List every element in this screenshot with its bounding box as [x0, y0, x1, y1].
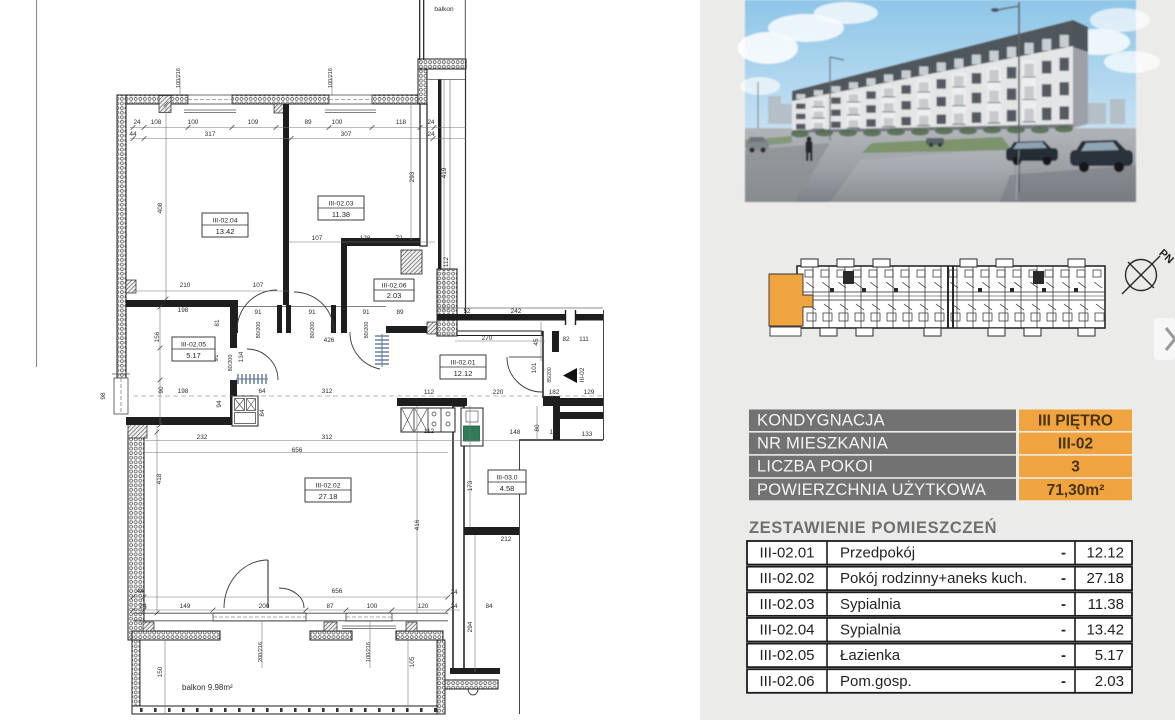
svg-text:POWIERZCHNIA UŻYTKOWA: POWIERZCHNIA UŻYTKOWA [757, 480, 986, 499]
svg-text:-: - [1061, 673, 1066, 690]
svg-text:4.58: 4.58 [500, 484, 515, 493]
svg-text:Sypialnia: Sypialnia [840, 596, 902, 613]
svg-text:307: 307 [341, 131, 352, 138]
svg-text:128: 128 [360, 235, 371, 242]
svg-text:5.17: 5.17 [1095, 647, 1124, 664]
svg-text:-: - [1061, 596, 1066, 613]
svg-text:91: 91 [308, 309, 316, 316]
svg-text:KONDYGNACJA: KONDYGNACJA [757, 412, 885, 430]
svg-text:Pokój rodzinny+aneks kuch.: Pokój rodzinny+aneks kuch. [840, 570, 1027, 587]
svg-text:III-02.04: III-02.04 [213, 218, 238, 225]
svg-text:317: 317 [205, 131, 216, 138]
svg-text:Łazienka: Łazienka [840, 647, 901, 664]
svg-text:270: 270 [482, 335, 493, 342]
svg-text:312: 312 [322, 434, 333, 441]
svg-text:105: 105 [409, 656, 416, 667]
svg-text:2.03: 2.03 [387, 291, 402, 300]
svg-text:416: 416 [414, 519, 421, 530]
svg-text:656: 656 [332, 588, 343, 595]
svg-text:90: 90 [158, 386, 165, 394]
svg-text:198: 198 [178, 388, 189, 395]
svg-text:91: 91 [254, 309, 262, 316]
svg-text:100/216: 100/216 [176, 68, 182, 88]
svg-text:150: 150 [157, 666, 164, 677]
svg-text:419: 419 [441, 167, 448, 178]
svg-text:III-02.05: III-02.05 [759, 647, 814, 664]
svg-text:Pom.gosp.: Pom.gosp. [840, 673, 912, 690]
svg-text:87: 87 [326, 603, 334, 610]
svg-text:III-02.04: III-02.04 [759, 621, 814, 638]
svg-text:80/200: 80/200 [228, 355, 234, 372]
svg-text:24: 24 [133, 119, 141, 126]
svg-text:52: 52 [463, 308, 471, 315]
svg-text:45: 45 [533, 338, 540, 346]
svg-text:84: 84 [485, 603, 493, 610]
svg-text:3: 3 [1071, 459, 1080, 476]
svg-text:242: 242 [511, 308, 522, 315]
svg-text:Sypialnia: Sypialnia [840, 621, 902, 638]
svg-text:-: - [1061, 545, 1066, 562]
svg-text:220: 220 [493, 389, 504, 396]
svg-text:24: 24 [427, 119, 435, 126]
svg-text:89: 89 [304, 119, 312, 126]
svg-text:100/216: 100/216 [328, 68, 334, 88]
svg-text:156: 156 [154, 331, 161, 342]
svg-text:84: 84 [259, 409, 266, 417]
svg-text:112: 112 [443, 256, 450, 267]
svg-text:72: 72 [395, 235, 403, 242]
svg-text:418: 418 [156, 473, 163, 484]
svg-text:Przedpokój: Przedpokój [840, 545, 915, 562]
svg-text:III-02.02: III-02.02 [759, 570, 814, 587]
svg-text:2.03: 2.03 [1095, 673, 1124, 690]
svg-text:24: 24 [450, 603, 458, 610]
svg-text:5.17: 5.17 [186, 351, 201, 360]
svg-text:24: 24 [427, 131, 435, 138]
svg-text:III-02.03: III-02.03 [329, 201, 354, 208]
svg-text:III-03.0: III-03.0 [496, 475, 517, 482]
svg-text:27.18: 27.18 [319, 492, 338, 501]
svg-text:107: 107 [253, 282, 264, 289]
svg-text:210: 210 [180, 282, 191, 289]
svg-text:81: 81 [214, 319, 221, 327]
svg-text:89: 89 [396, 309, 404, 316]
svg-text:-: - [1061, 621, 1066, 638]
svg-text:426: 426 [324, 337, 335, 344]
svg-text:III-02.01: III-02.01 [451, 360, 476, 367]
svg-text:112: 112 [424, 428, 435, 435]
svg-text:64: 64 [258, 388, 266, 395]
svg-text:182: 182 [549, 389, 560, 396]
svg-text:98: 98 [100, 392, 107, 400]
svg-text:134: 134 [238, 351, 245, 362]
svg-text:82: 82 [562, 336, 570, 343]
svg-text:27.18: 27.18 [1086, 570, 1124, 587]
svg-text:120: 120 [418, 603, 429, 610]
svg-text:148: 148 [510, 429, 521, 436]
svg-text:LICZBA POKOI: LICZBA POKOI [757, 458, 873, 476]
svg-text:12.12: 12.12 [454, 369, 473, 378]
svg-text:656: 656 [292, 447, 303, 454]
svg-text:91: 91 [362, 309, 370, 316]
svg-text:198: 198 [178, 307, 189, 314]
svg-text:294: 294 [467, 621, 474, 632]
svg-text:200/216: 200/216 [258, 642, 264, 662]
svg-text:III-02.06: III-02.06 [382, 283, 407, 290]
svg-text:24: 24 [450, 589, 458, 596]
svg-text:112: 112 [424, 389, 435, 396]
svg-text:balkon 9.98m²: balkon 9.98m² [182, 683, 233, 692]
svg-text:85/200: 85/200 [547, 367, 553, 383]
svg-text:13.42: 13.42 [216, 227, 235, 236]
svg-text:12.12: 12.12 [1086, 545, 1124, 562]
svg-text:11.38: 11.38 [1088, 596, 1124, 613]
svg-text:212: 212 [501, 536, 512, 543]
svg-text:100: 100 [367, 603, 378, 610]
svg-text:111: 111 [579, 336, 589, 343]
svg-text:III PIĘTRO: III PIĘTRO [1038, 413, 1113, 430]
svg-text:ZESTAWIENIE POMIESZCZEŃ: ZESTAWIENIE POMIESZCZEŃ [749, 518, 997, 537]
svg-text:III-02: III-02 [1058, 436, 1093, 453]
svg-text:232: 232 [197, 434, 208, 441]
svg-text:24: 24 [139, 603, 147, 610]
svg-text:80/200: 80/200 [310, 322, 316, 339]
svg-text:III-02: III-02 [579, 367, 586, 382]
svg-text:118: 118 [396, 119, 407, 126]
svg-text:III-02.02: III-02.02 [316, 483, 341, 490]
svg-text:III-02.06: III-02.06 [759, 673, 814, 690]
svg-text:80/200: 80/200 [364, 322, 370, 339]
svg-text:-: - [1061, 647, 1066, 664]
svg-text:11.38: 11.38 [332, 210, 350, 219]
svg-text:80: 80 [534, 424, 541, 432]
svg-text:101: 101 [531, 362, 538, 373]
svg-text:44: 44 [136, 588, 144, 595]
svg-text:80/200: 80/200 [256, 322, 262, 339]
svg-text:13.42: 13.42 [1086, 621, 1124, 638]
svg-text:107: 107 [312, 235, 323, 242]
svg-text:173: 173 [467, 480, 474, 491]
svg-text:312: 312 [322, 388, 333, 395]
svg-text:III-02.05: III-02.05 [181, 342, 206, 349]
svg-text:71,30m²: 71,30m² [1047, 482, 1105, 499]
svg-text:94: 94 [216, 400, 223, 408]
svg-text:109: 109 [248, 119, 259, 126]
svg-text:408: 408 [157, 202, 164, 213]
svg-text:NR MIESZKANIA: NR MIESZKANIA [757, 435, 888, 453]
svg-text:12: 12 [549, 429, 557, 436]
svg-text:200: 200 [259, 603, 270, 610]
svg-text:100/216: 100/216 [366, 642, 372, 662]
svg-text:129: 129 [584, 389, 595, 396]
svg-text:-: - [1061, 570, 1066, 587]
svg-text:balkon: balkon [434, 6, 454, 13]
svg-text:100: 100 [332, 119, 343, 126]
svg-text:100: 100 [188, 119, 199, 126]
svg-text:III-02.01: III-02.01 [759, 545, 814, 562]
svg-text:293: 293 [409, 171, 416, 182]
svg-text:44: 44 [129, 131, 137, 138]
svg-text:133: 133 [582, 431, 593, 438]
svg-text:149: 149 [180, 603, 191, 610]
svg-text:III-02.03: III-02.03 [759, 596, 814, 613]
svg-text:108: 108 [151, 119, 162, 126]
